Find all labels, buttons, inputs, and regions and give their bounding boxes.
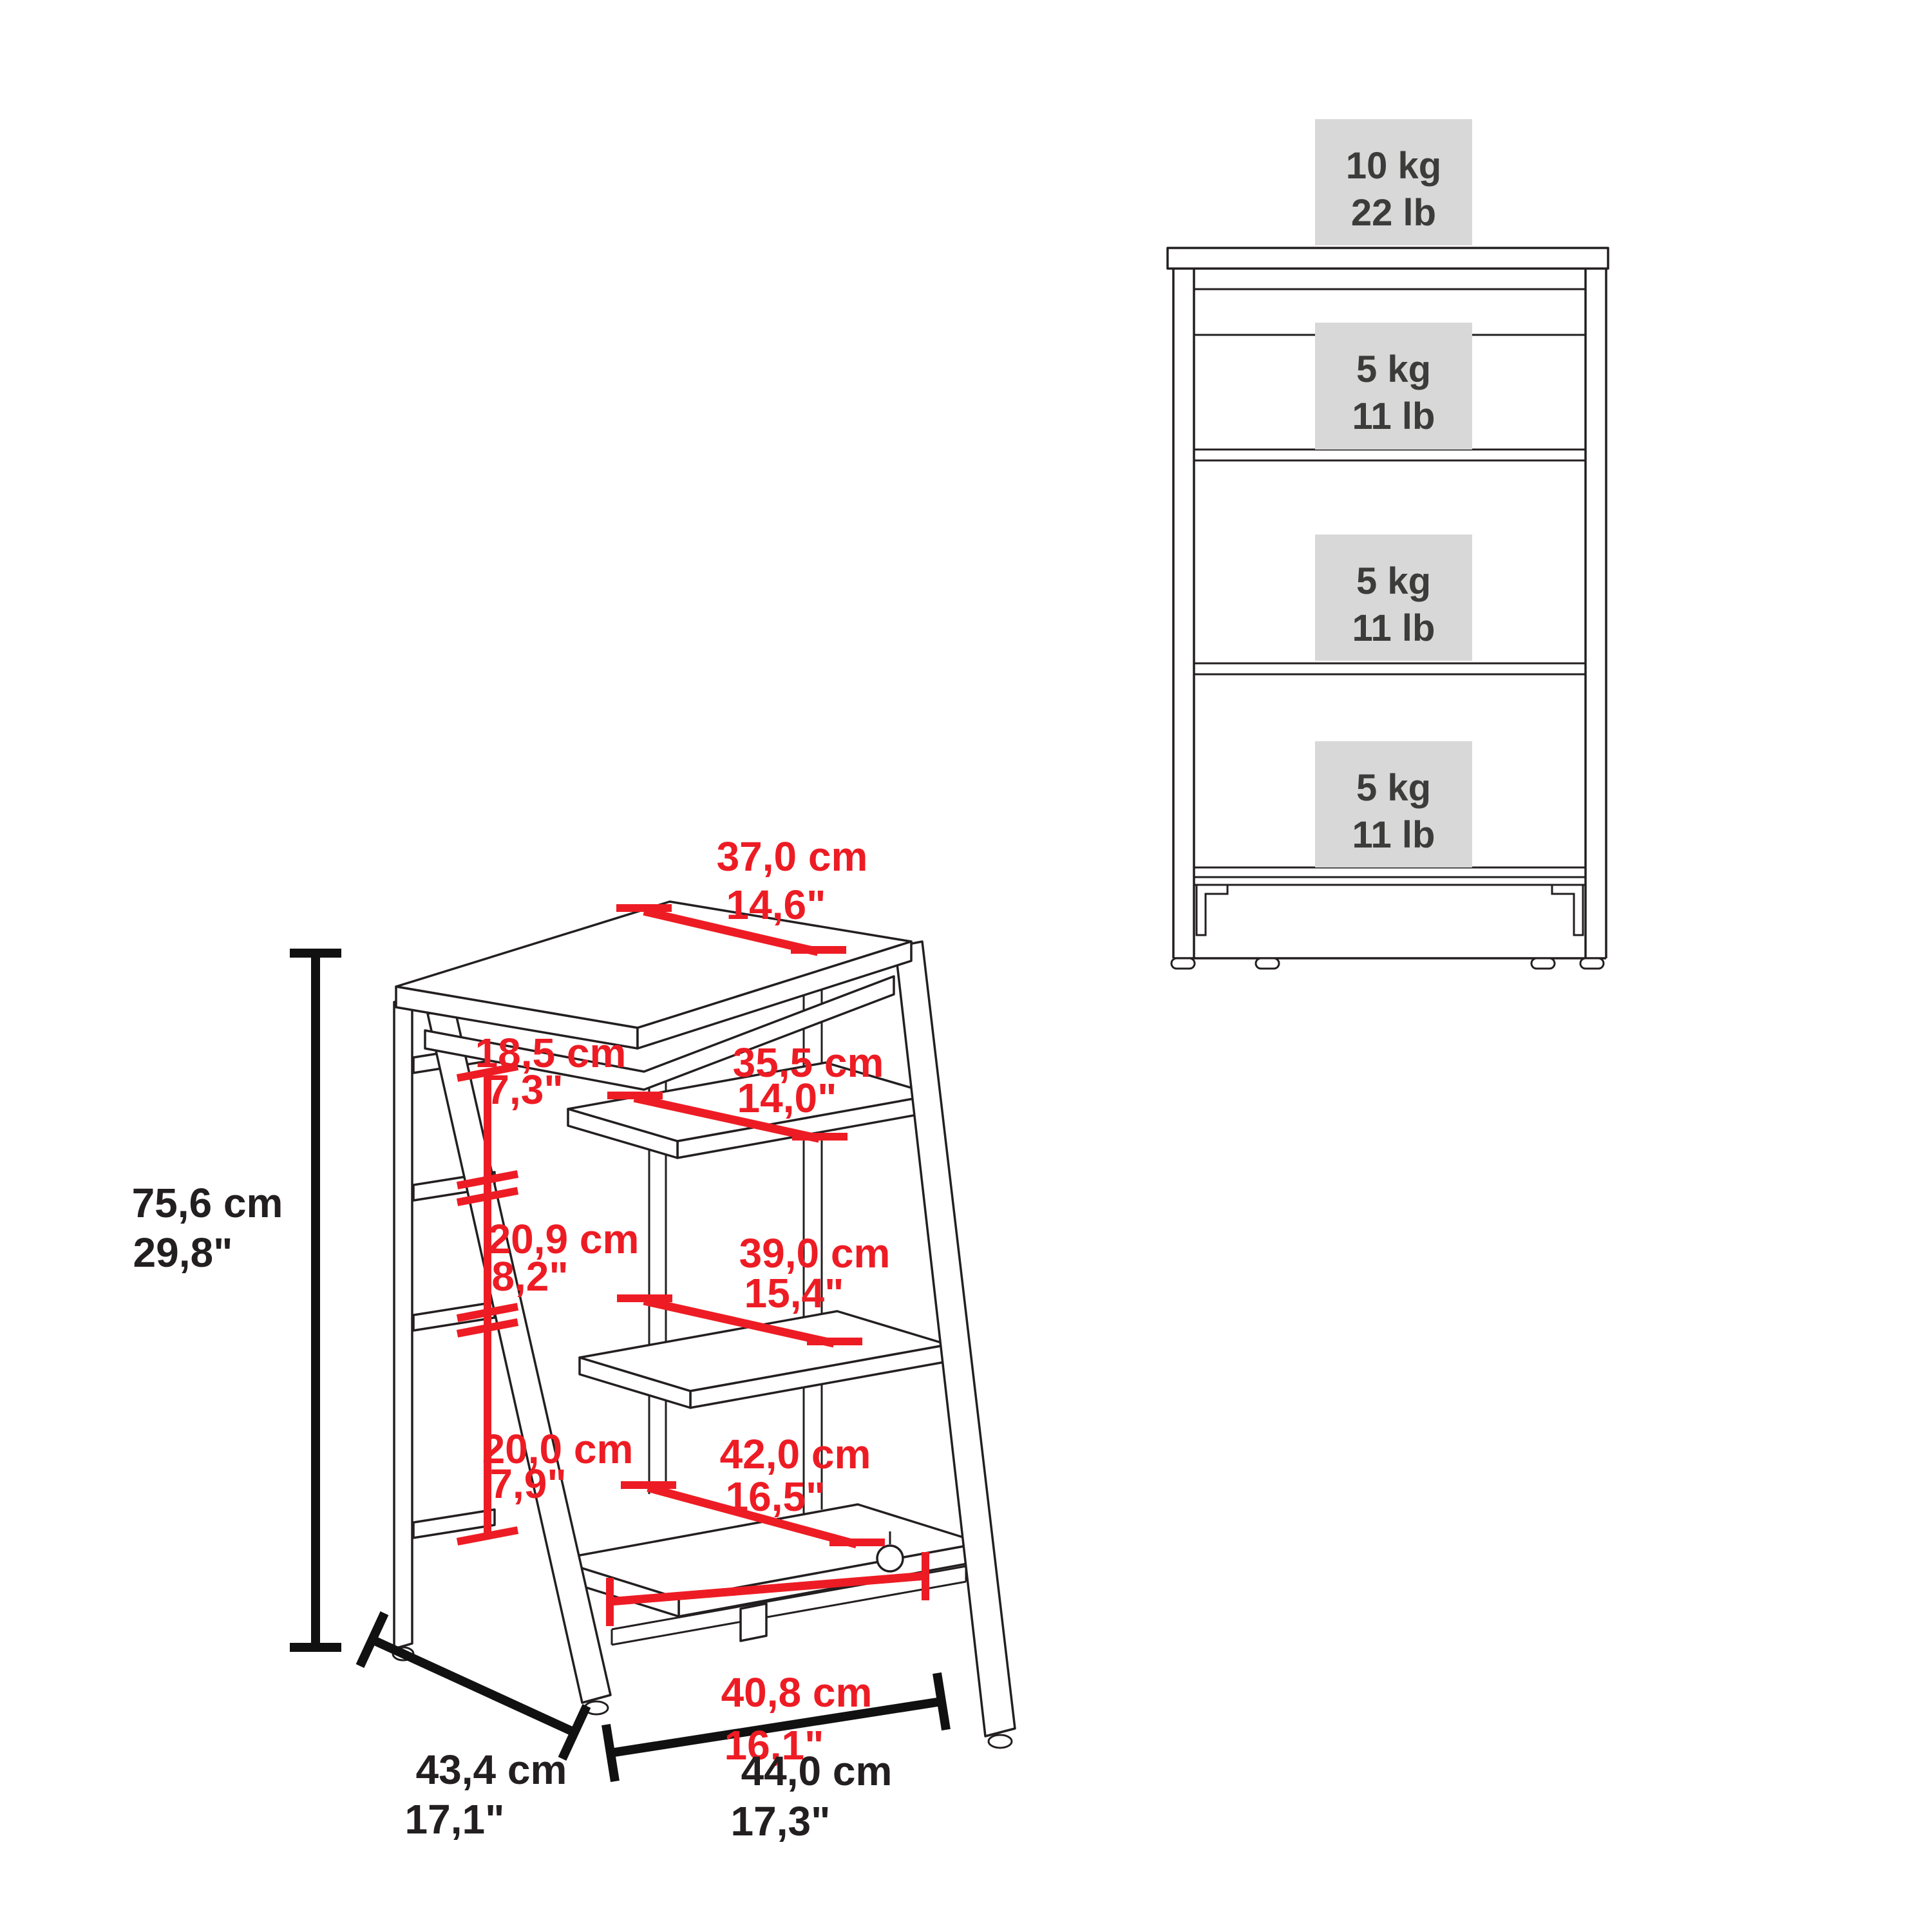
- load-lb: 22 lb: [1351, 192, 1436, 234]
- load-box-shelf-3: 5 kg 11 lb: [1315, 741, 1472, 867]
- diagram-svg: 10 kg 22 lb 5 kg 11 lb 5 kg 11 lb 5 kg 1…: [0, 0, 1932, 1932]
- label-opening1-in: 7,3": [486, 1066, 563, 1113]
- load-lb: 11 lb: [1352, 395, 1435, 437]
- load-kg: 5 kg: [1356, 560, 1431, 602]
- front-shelf-3: [1194, 867, 1586, 885]
- dimension-diagram: 10 kg 22 lb 5 kg 11 lb 5 kg 11 lb 5 kg 1…: [0, 0, 1932, 1932]
- load-box-shelf-1: 5 kg 11 lb: [1315, 323, 1472, 450]
- dim-height-line: [290, 953, 341, 1647]
- front-base-bracket-right: [1552, 885, 1583, 935]
- label-height-cm: 75,6 cm: [132, 1180, 283, 1226]
- iso-top-panel: [396, 902, 911, 1048]
- label-width-in: 17,3": [731, 1798, 831, 1844]
- label-depth-cm: 43,4 cm: [416, 1747, 567, 1793]
- label-shelf2-depth-in: 15,4": [744, 1270, 844, 1316]
- front-foot-1: [1171, 958, 1195, 969]
- front-foot-3: [1531, 958, 1555, 969]
- load-kg: 10 kg: [1346, 145, 1441, 187]
- front-top-panel: [1168, 248, 1608, 269]
- load-box-top: 10 kg 22 lb: [1315, 119, 1472, 245]
- label-top-depth-cm: 37,0 cm: [717, 833, 868, 880]
- front-view: 10 kg 22 lb 5 kg 11 lb 5 kg 11 lb 5 kg 1…: [1168, 119, 1608, 969]
- front-shelf-1: [1194, 450, 1586, 460]
- iso-left-side-panel: [394, 998, 412, 1649]
- label-bottom-width-cm: 40,8 cm: [721, 1669, 873, 1716]
- iso-view: 37,0 cm 14,6" 18,5 cm 7,3" 35,5 cm 14,0"…: [132, 833, 1015, 1844]
- label-depth-in: 17,1": [405, 1796, 505, 1842]
- label-top-depth-in: 14,6": [726, 882, 826, 928]
- label-height-in: 29,8": [133, 1229, 233, 1276]
- iso-foot-right: [989, 1735, 1012, 1748]
- front-foot-4: [1580, 958, 1604, 969]
- load-box-shelf-2: 5 kg 11 lb: [1315, 535, 1472, 661]
- front-shelf-2: [1194, 663, 1586, 674]
- load-kg: 5 kg: [1356, 767, 1431, 809]
- label-width-cm: 44,0 cm: [741, 1748, 893, 1794]
- label-shelf1-depth-in: 14,0": [737, 1075, 837, 1121]
- label-shelf3-depth-cm: 42,0 cm: [720, 1431, 871, 1477]
- load-kg: 5 kg: [1356, 348, 1431, 390]
- iso-caster: [877, 1546, 903, 1571]
- label-opening2-in: 8,2": [491, 1253, 568, 1300]
- front-base-bracket-left: [1197, 885, 1227, 935]
- front-foot-2: [1256, 958, 1279, 969]
- load-lb: 11 lb: [1352, 607, 1435, 649]
- iso-base-support: [741, 1604, 766, 1641]
- label-shelf3-depth-in: 16,5": [726, 1473, 826, 1520]
- load-lb: 11 lb: [1352, 814, 1435, 856]
- label-opening3-in: 7,9": [489, 1461, 566, 1507]
